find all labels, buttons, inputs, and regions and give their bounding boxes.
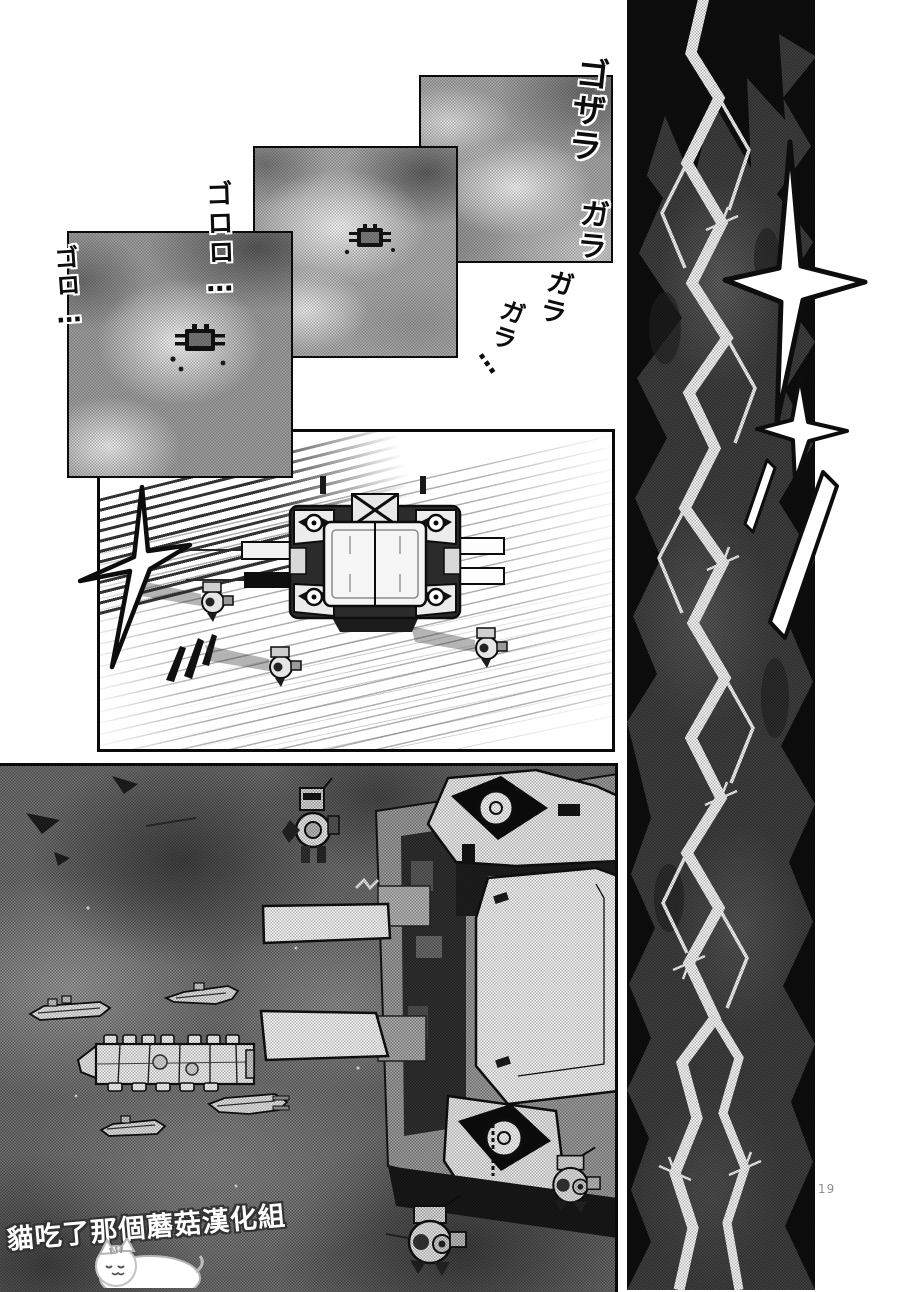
cargo-container-large <box>186 476 504 632</box>
debris <box>26 776 196 866</box>
sfx-rattle-2: ガラ <box>533 266 574 329</box>
sfx-rumble-long: ゴロロ… <box>202 180 234 301</box>
panel-clouds-left <box>67 231 293 478</box>
cargo-container-icon <box>165 317 245 375</box>
drone-icon <box>205 645 301 687</box>
sparkle-icon <box>78 485 193 670</box>
battleship-icon <box>101 1116 165 1136</box>
sfx-rumble-short: ゴロ… <box>51 244 82 331</box>
mecha-icon <box>282 778 339 863</box>
battleship-icon <box>30 996 110 1020</box>
sfx-rattle-1: ガラ <box>571 197 607 263</box>
sfx-crash: ゴザラ <box>562 54 608 165</box>
sparkle-tail <box>745 460 775 532</box>
page-number: 19 <box>818 1182 835 1196</box>
sparkle-tail <box>770 472 837 638</box>
panel-arm <box>261 904 390 1060</box>
drone-icon <box>411 626 507 668</box>
carrier-ship-icon <box>78 1035 254 1091</box>
cat-mascot-icon <box>88 1238 208 1288</box>
battleship-icon <box>209 1094 289 1114</box>
battleship-icon <box>166 983 238 1004</box>
cargo-container-icon <box>341 218 411 264</box>
sparkle-icon <box>725 142 865 422</box>
sparkle-icons <box>715 130 885 660</box>
